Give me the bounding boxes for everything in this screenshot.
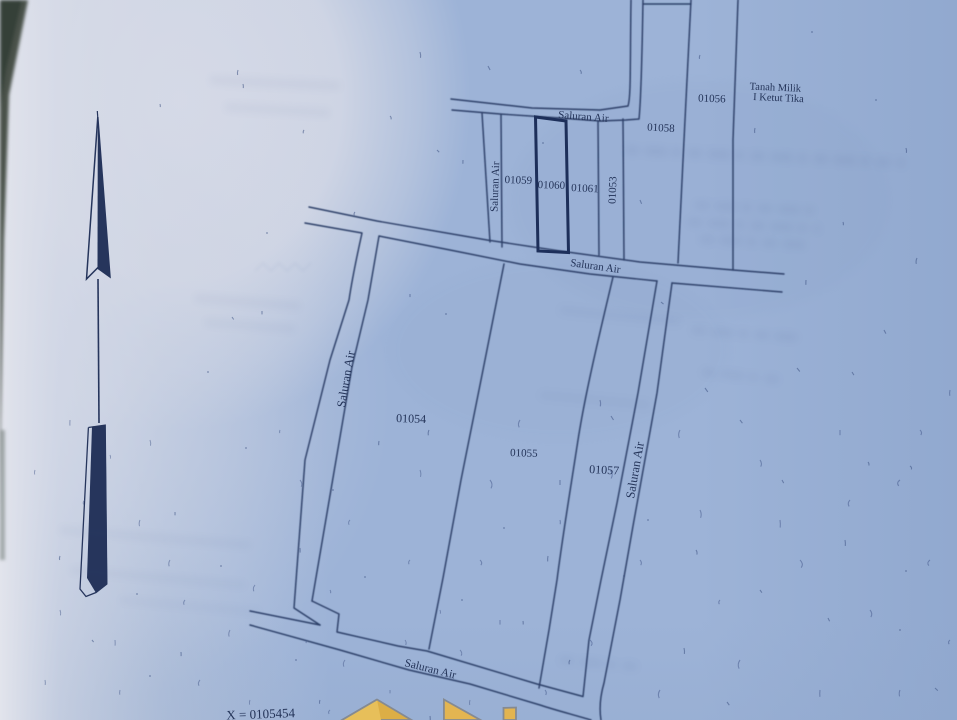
svg-text:01061: 01061 [571,182,599,195]
svg-text:01055: 01055 [510,447,538,460]
svg-text:01054: 01054 [396,411,426,426]
svg-text:I Ketut Tika: I Ketut Tika [753,92,805,105]
svg-text:01059: 01059 [504,174,532,187]
svg-text:01056: 01056 [698,93,726,106]
svg-text:01057: 01057 [589,462,620,478]
svg-text:01053: 01053 [607,176,620,204]
svg-text:Saluran Air: Saluran Air [489,161,503,212]
svg-text:01058: 01058 [647,122,676,135]
svg-text:X = 0105454: X = 0105454 [226,705,296,720]
svg-text:01060: 01060 [537,179,565,192]
